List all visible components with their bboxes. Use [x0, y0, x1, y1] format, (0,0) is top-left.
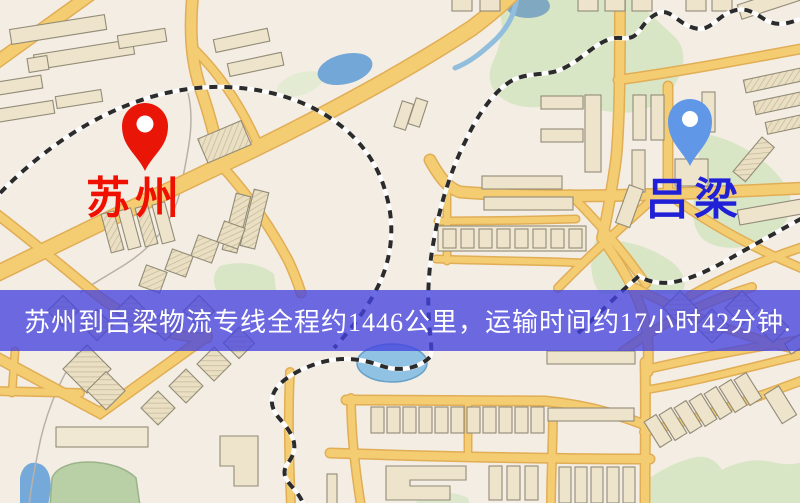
info-banner: 苏州到吕梁物流专线全程约1446公里，运输时间约17小时42分钟. — [0, 290, 800, 351]
origin-city-label: 苏州 — [86, 177, 184, 221]
destination-city-label: 吕梁 — [645, 178, 743, 222]
banner-text: 苏州到吕梁物流专线全程约1446公里，运输时间约17小时42分钟. — [0, 302, 792, 339]
map-canvas[interactable] — [0, 0, 800, 503]
map-screenshot: 苏州 吕梁 苏州到吕梁物流专线全程约1446公里，运输时间约17小时42分钟. — [0, 0, 800, 503]
